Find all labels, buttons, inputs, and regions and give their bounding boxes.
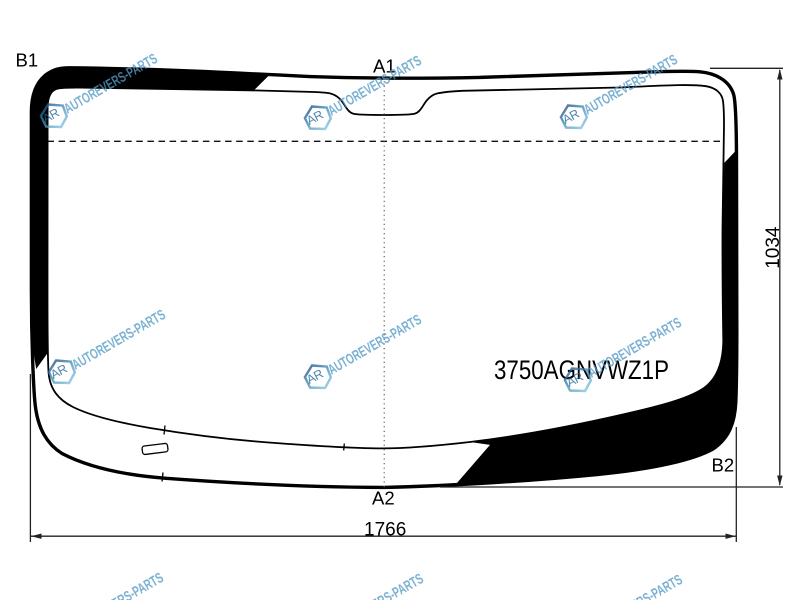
svg-text:B2: B2: [712, 455, 735, 476]
svg-text:A2: A2: [372, 488, 395, 509]
svg-text:B1: B1: [16, 50, 39, 71]
svg-text:1766: 1766: [364, 519, 406, 540]
svg-text:1034: 1034: [763, 226, 784, 269]
